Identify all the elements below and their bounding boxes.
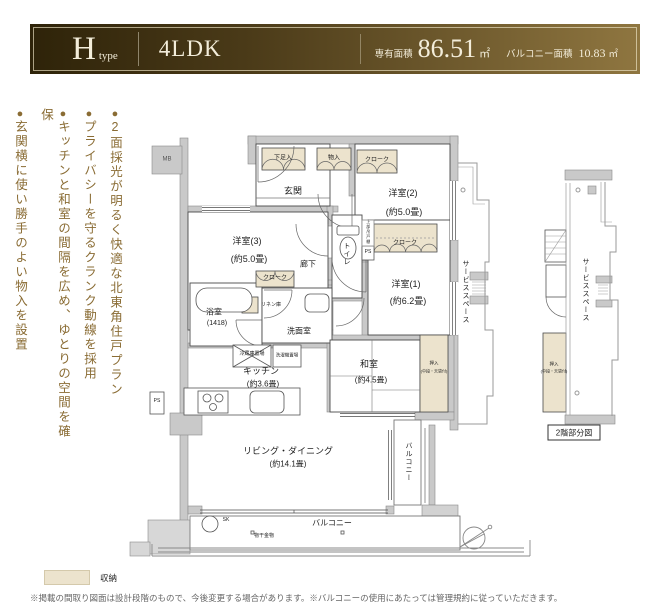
- toilet-bowl-icon: [340, 237, 356, 259]
- hanger-mark: [341, 531, 344, 534]
- footnote: ※掲載の間取り図面は設計段階のもので、今後変更する場合があります。※バルコニーの…: [30, 592, 562, 604]
- hanger-mark: [251, 531, 254, 534]
- upper-cabinet-box: [362, 220, 374, 246]
- service-space-outline: [458, 163, 493, 424]
- washbasin-icon: [305, 294, 329, 312]
- bathtub-icon: [196, 288, 252, 312]
- ps-box-1: [362, 246, 374, 260]
- washer-space-box: [273, 345, 301, 367]
- legend-label: 収納: [100, 572, 117, 584]
- sink-icon: [250, 391, 284, 413]
- storage-swatch: [44, 570, 90, 585]
- slop-sink-icon: [202, 516, 218, 532]
- partial-title-box: [548, 425, 600, 440]
- partial-door-box: [546, 265, 566, 297]
- toilet-tank-icon: [337, 226, 359, 235]
- floorplan-drawing: [0, 0, 671, 610]
- compass-icon: [460, 525, 492, 549]
- ps-box-2: [150, 392, 164, 414]
- floorplan-page: H type 4LDK 専有面積 86.51 ㎡ バルコニー面積 10.83 ㎡…: [0, 0, 671, 610]
- legend: 収納: [44, 570, 117, 585]
